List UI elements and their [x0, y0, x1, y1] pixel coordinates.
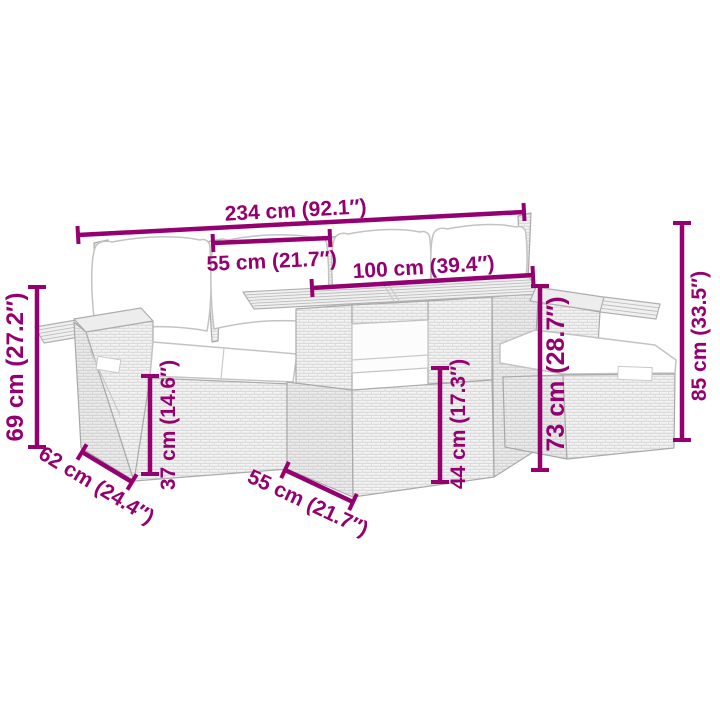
table-shelf-opening [352, 320, 428, 373]
dimension-armrest-height: 69 cm (27.2″) [2, 287, 46, 447]
table-base-front-face [352, 380, 494, 497]
right-folding-shelf [600, 297, 660, 319]
dimension-label-37: 37 cm (14.6″) [157, 360, 180, 490]
product-dimension-diagram: 234 cm (92.1″) 55 cm (21.7″) 100 cm (39.… [0, 0, 720, 720]
dimension-back-height: 85 cm (33.5″) [673, 223, 711, 440]
diagram-svg: 234 cm (92.1″) 55 cm (21.7″) 100 cm (39.… [0, 0, 720, 720]
product-label [618, 366, 652, 380]
dimension-label-73: 73 cm (28.7″) [542, 296, 570, 451]
furniture-illustration [35, 213, 676, 497]
table-base-left-face [287, 382, 353, 497]
footstool [500, 330, 676, 459]
stool-front-face [563, 374, 675, 459]
dimension-label-69: 69 cm (27.2″) [2, 293, 29, 442]
dimension-label-85: 85 cm (33.5″) [688, 271, 711, 401]
dimension-label-44: 44 cm (17.3″) [447, 359, 470, 489]
table-left-column [296, 305, 352, 396]
